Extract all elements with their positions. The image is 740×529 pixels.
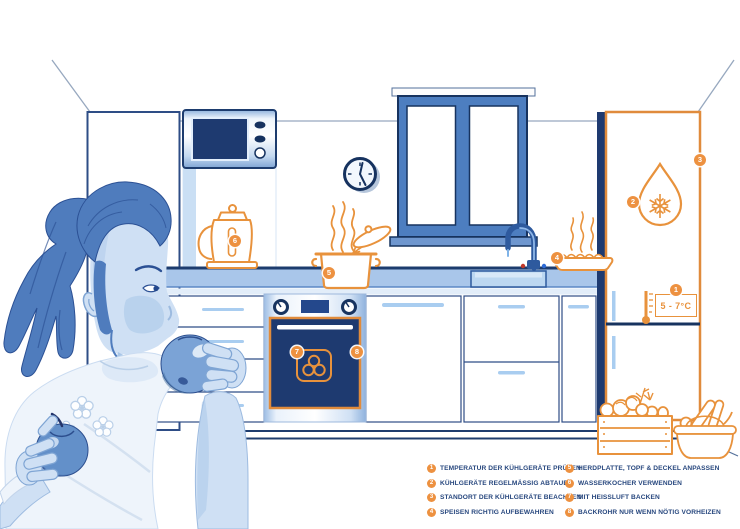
window-pane — [407, 106, 456, 225]
oven-display — [301, 300, 329, 313]
legend-label: MIT HEISSLUFT BACKEN — [578, 494, 660, 501]
cabinet-right — [562, 296, 596, 422]
legend-number-badge: 6 — [565, 479, 574, 488]
fridge-handle — [612, 291, 616, 321]
microwave-knob — [255, 148, 265, 158]
legend-number-badge: 7 — [565, 493, 574, 502]
microwave-button — [255, 122, 266, 129]
marker-1: 1 — [670, 284, 682, 296]
cold-tap-dot — [542, 264, 546, 268]
marker-3: 3 — [694, 154, 706, 166]
legend-label: TEMPERATUR DER KÜHLGERÄTE PRÜFEN — [440, 465, 581, 472]
oven-handle — [277, 325, 353, 330]
kitchen-scene — [0, 0, 740, 529]
sink-cabinet — [464, 296, 559, 422]
legend-label: BACKROHR NUR WENN NÖTIG VORHEIZEN — [578, 509, 721, 516]
legend-item: 2 KÜHLGERÄTE REGELMÄSSIG ABTAUEN — [427, 479, 581, 488]
cabinet-door — [366, 296, 461, 422]
hot-tap-dot — [521, 264, 525, 268]
marker-5: 5 — [323, 267, 335, 279]
legend-number-badge: 3 — [427, 493, 436, 502]
window-pane — [470, 106, 519, 225]
legend-number-badge: 5 — [565, 464, 574, 473]
microwave-window — [192, 118, 248, 160]
legend-number-badge: 4 — [427, 508, 436, 517]
legend-item: 5 HERDPLATTE, TOPF & DECKEL ANPASSEN — [565, 464, 721, 473]
fridge-temperature-label: 5 - 7°C — [655, 294, 697, 317]
legend-item: 4 SPEISEN RICHTIG AUFBEWAHREN — [427, 508, 581, 517]
legend-number-badge: 8 — [565, 508, 574, 517]
window — [390, 88, 537, 246]
legend-label: HERDPLATTE, TOPF & DECKEL ANPASSEN — [578, 465, 720, 472]
marker-4: 4 — [551, 252, 563, 264]
marker-2: 2 — [627, 196, 639, 208]
legend-item: 3 STANDORT DER KÜHLGERÄTE BEACHTEN — [427, 493, 581, 502]
legend-number-badge: 1 — [427, 464, 436, 473]
legend-label: SPEISEN RICHTIG AUFBEWAHREN — [440, 509, 554, 516]
microwave — [183, 110, 276, 168]
legend-label: KÜHLGERÄTE REGELMÄSSIG ABTAUEN — [440, 480, 573, 487]
energy-saving-kitchen-infographic: 1 2 3 4 5 6 7 8 5 - 7°C 1 TEMPERATUR DER… — [0, 0, 740, 529]
legend-column-right: 5 HERDPLATTE, TOPF & DECKEL ANPASSEN 6 W… — [565, 464, 721, 517]
sink — [471, 271, 546, 287]
window-sill — [390, 237, 537, 246]
marker-6: 6 — [229, 235, 241, 247]
marker-7: 7 — [291, 346, 303, 358]
legend-label: STANDORT DER KÜHLGERÄTE BEACHTEN — [440, 494, 581, 501]
legend-item: 1 TEMPERATUR DER KÜHLGERÄTE PRÜFEN — [427, 464, 581, 473]
wall-clock-icon — [345, 159, 381, 194]
legend-item: 7 MIT HEISSLUFT BACKEN — [565, 493, 721, 502]
legend-number-badge: 2 — [427, 479, 436, 488]
microwave-button — [255, 136, 266, 143]
legend-item: 6 WASSERKOCHER VERWENDEN — [565, 479, 721, 488]
legend-label: WASSERKOCHER VERWENDEN — [578, 480, 682, 487]
fridge-handle — [612, 336, 616, 369]
oven — [264, 294, 366, 422]
legend-item: 8 BACKROHR NUR WENN NÖTIG VORHEIZEN — [565, 508, 721, 517]
marker-8: 8 — [351, 346, 363, 358]
legend-column-left: 1 TEMPERATUR DER KÜHLGERÄTE PRÜFEN 2 KÜH… — [427, 464, 581, 517]
